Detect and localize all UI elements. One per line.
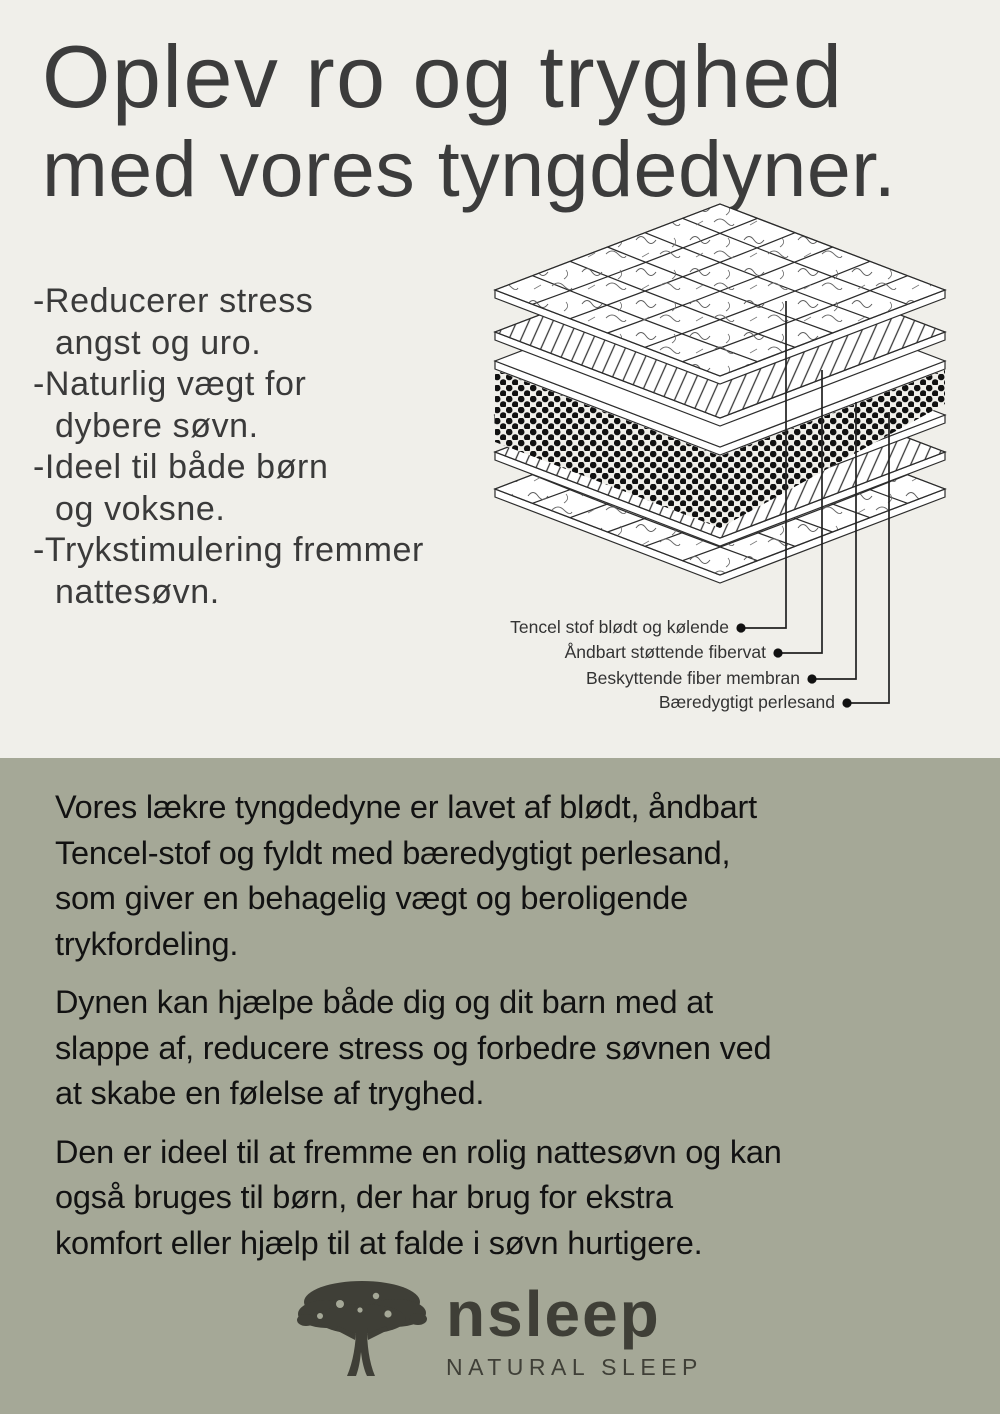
benefit-line: -Naturlig vægt for [33, 364, 424, 406]
poster: Oplev ro og tryghed med vores tyngdedyne… [0, 0, 1000, 1414]
body-paragraph-3: Den er ideel til at fremme en rolig natt… [55, 1130, 960, 1267]
benefit-line: angst og uro. [33, 323, 424, 365]
layer-label-fibervat: Åndbart støttende fibervat [565, 642, 766, 662]
leader-dot [807, 674, 816, 683]
body-copy: Vores lækre tyngdedyne er lavet af blødt… [0, 758, 1000, 1266]
top-section: Oplev ro og tryghed med vores tyngdedyne… [0, 0, 1000, 758]
layer-plates-group [495, 204, 945, 583]
layer-label-perlesand: Bæredygtigt perlesand [659, 692, 835, 712]
benefit-line: dybere søvn. [33, 406, 424, 448]
leader-dot [736, 623, 745, 632]
leader-dot [842, 698, 851, 707]
logo: nsleep NATURAL SLEEP [290, 1276, 703, 1381]
benefit-line: og voksne. [33, 489, 424, 531]
brand-name: nsleep [446, 1282, 703, 1346]
layer-label-membran: Beskyttende fiber membran [586, 668, 800, 688]
body-paragraph-2: Dynen kan hjælpe både dig og dit barn me… [55, 980, 960, 1117]
headline-line-2: med vores tyngdedyner. [42, 129, 896, 208]
body-paragraph-1: Vores lækre tyngdedyne er lavet af blødt… [55, 785, 960, 967]
benefit-line: nattesøvn. [33, 572, 424, 614]
layer-label-tencel: Tencel stof blødt og kølende [510, 617, 729, 637]
tree-icon [290, 1276, 432, 1380]
benefit-line: -Ideel til både børn [33, 447, 424, 489]
brand-tagline: NATURAL SLEEP [446, 1354, 703, 1381]
benefit-line: -Trykstimulering fremmer [33, 530, 424, 572]
duvet-layers-diagram: Tencel stof blødt og kølende Åndbart stø… [470, 198, 990, 728]
logo-text: nsleep NATURAL SLEEP [446, 1276, 703, 1381]
headline-line-1: Oplev ro og tryghed [42, 30, 896, 123]
leader-dot [773, 648, 782, 657]
benefits-list: -Reducerer stress angst og uro. -Naturli… [33, 281, 424, 613]
benefit-line: -Reducerer stress [33, 281, 424, 323]
layer-labels-group: Tencel stof blødt og kølende Åndbart stø… [510, 617, 835, 712]
headline: Oplev ro og tryghed med vores tyngdedyne… [42, 30, 896, 208]
